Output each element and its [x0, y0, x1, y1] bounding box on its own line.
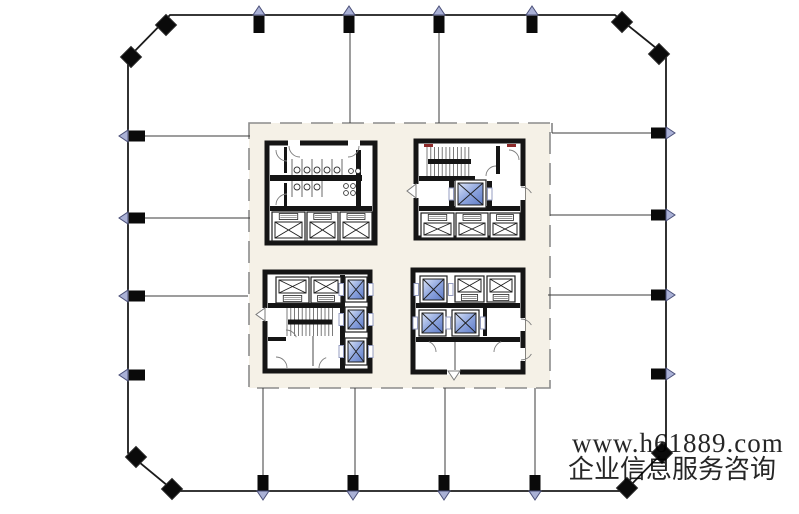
door-pocket: [446, 317, 451, 329]
toilet-fixture: [351, 184, 356, 189]
column-marker: [129, 131, 145, 142]
toilet-fixture: [304, 167, 310, 173]
column-triangle-icon: [119, 290, 128, 302]
toilet-fixture: [351, 191, 356, 196]
door-pocket: [488, 188, 493, 200]
toilet-fixture: [344, 184, 349, 189]
wall-segment: [416, 337, 520, 342]
watermark-url-text: www.h61889.com: [572, 428, 784, 458]
door-pocket: [481, 317, 486, 329]
column-triangle-icon: [666, 127, 675, 139]
column-marker: [434, 16, 445, 33]
column-marker: [439, 475, 450, 491]
column-triangle-icon: [119, 130, 128, 142]
column-marker: [254, 16, 265, 33]
door-pocket: [339, 346, 344, 358]
door-opening: [517, 186, 525, 200]
door-pocket: [413, 317, 418, 329]
elevator-door: [318, 296, 335, 302]
wall-segment: [268, 303, 342, 308]
door-pocket: [339, 284, 344, 296]
toilet-fixture: [314, 167, 320, 173]
corner-column-marker: [162, 479, 183, 500]
toilet-fixture: [334, 167, 340, 173]
door-pocket: [369, 346, 374, 358]
column-triangle-icon: [433, 6, 445, 15]
door-pocket: [369, 284, 374, 296]
elevator-door: [283, 296, 301, 302]
column-triangle-icon: [529, 491, 541, 500]
toilet-fixture: [294, 184, 300, 190]
column-triangle-icon: [438, 491, 450, 500]
column-triangle-icon: [257, 491, 269, 500]
toilet-fixture: [356, 169, 361, 174]
door-pocket: [449, 188, 454, 200]
wall-segment: [416, 303, 520, 308]
stair-rail: [288, 320, 332, 325]
floor-plan-svg: www.h61889.com 企业信息服务咨询: [0, 0, 799, 514]
column-triangle-icon: [666, 289, 675, 301]
column-marker: [651, 128, 666, 139]
column-marker: [129, 370, 145, 381]
column-triangle-icon: [119, 369, 128, 381]
elevator-door: [497, 215, 514, 221]
door-opening: [348, 140, 360, 146]
toilet-fixture: [304, 184, 310, 190]
wall-segment: [270, 175, 362, 181]
column-triangle-icon: [347, 491, 359, 500]
column-marker: [258, 475, 269, 491]
column-marker: [129, 213, 145, 224]
wall-segment: [284, 147, 287, 173]
column-marker: [651, 210, 666, 221]
column-marker: [348, 475, 359, 491]
column-triangle-icon: [526, 6, 538, 15]
elevator-door: [279, 214, 297, 220]
stair-rail: [428, 159, 471, 164]
door-opening: [517, 318, 525, 331]
wall-segment: [270, 206, 372, 211]
corner-column-marker: [156, 15, 177, 36]
toilet-fixture: [349, 169, 354, 174]
elevator-door: [493, 295, 509, 301]
column-marker: [530, 475, 541, 491]
door-pocket: [339, 314, 344, 326]
watermark: www.h61889.com 企业信息服务咨询: [568, 428, 784, 484]
column-triangle-icon: [666, 209, 675, 221]
toilet-fixture: [344, 191, 349, 196]
toilet-fixture: [294, 167, 300, 173]
door-opening: [517, 348, 525, 361]
door-pocket: [449, 284, 454, 296]
column-marker: [527, 16, 538, 33]
corner-column-marker: [121, 47, 142, 68]
column-triangle-icon: [666, 368, 675, 380]
watermark-cn-text: 企业信息服务咨询: [568, 455, 776, 484]
door-pocket: [369, 314, 374, 326]
elevator-door: [314, 214, 331, 220]
door-opening: [288, 140, 300, 146]
column-triangle-icon: [253, 6, 265, 15]
floor-plan-page: www.h61889.com 企业信息服务咨询: [0, 0, 799, 514]
column-triangle-icon: [119, 212, 128, 224]
column-marker: [651, 369, 666, 380]
toilet-fixture: [314, 184, 320, 190]
wall-segment: [268, 337, 286, 341]
elevator-door: [461, 295, 477, 301]
column-marker: [651, 290, 666, 301]
door-pocket: [414, 284, 419, 296]
wall-segment: [496, 146, 500, 174]
elevator-door: [463, 215, 481, 221]
toilet-fixture: [324, 167, 330, 173]
column-triangle-icon: [343, 6, 355, 15]
wall-segment: [284, 183, 287, 207]
column-marker: [344, 16, 355, 33]
stair-marker: [507, 144, 516, 147]
wall-segment: [356, 150, 361, 207]
column-marker: [129, 291, 145, 302]
elevator-door: [428, 215, 446, 221]
stair-marker: [424, 144, 433, 147]
elevator-door: [347, 214, 365, 220]
